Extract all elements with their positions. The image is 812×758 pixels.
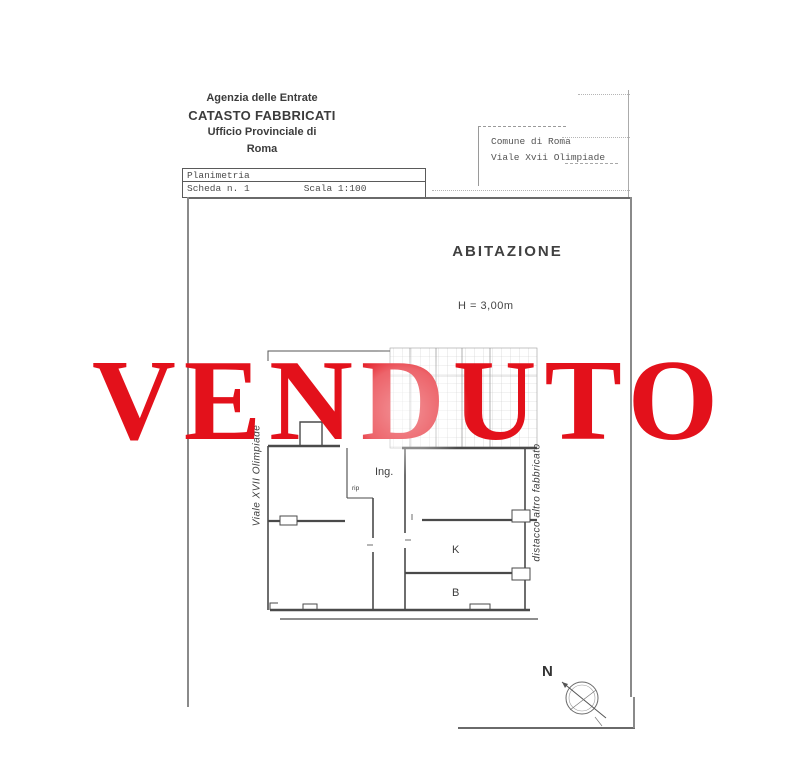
frame-top-border [187, 197, 632, 199]
agency-name: Agenzia delle Entrate [186, 90, 338, 107]
scan-artifact-vline [628, 90, 629, 197]
room-label-kitchen: K [452, 544, 460, 556]
planimetria-title: Planimetria [183, 169, 425, 182]
cadastre-title: CATASTO FABBRICATI [186, 107, 338, 124]
ceiling-height-label: H = 3,00m [458, 300, 514, 312]
sheet-number: Scheda n. 1 [187, 183, 250, 194]
province-name: Roma [186, 141, 338, 158]
window-symbol [512, 510, 530, 522]
planimetria-table: Planimetria Scheda n. 1 Scala 1:100 [182, 168, 426, 198]
window-symbol [280, 516, 297, 525]
window-symbol [512, 568, 530, 580]
scan-artifact-line [432, 190, 630, 191]
room-label-bathroom: B [452, 587, 459, 599]
scale-label: Scala 1:100 [304, 183, 367, 194]
location-box: Comune di Roma Viale Xvii Olimpiade [478, 126, 632, 186]
scan-artifact-line [565, 163, 618, 164]
agency-header: Agenzia delle Entrate CATASTO FABBRICATI… [186, 90, 338, 158]
room-label-closet: rip [352, 485, 360, 492]
gloss-highlight [338, 344, 470, 476]
provincial-office-label: Ufficio Provinciale di [186, 124, 338, 141]
frame-bottom-step [633, 697, 635, 728]
dwelling-type-label: ABITAZIONE [425, 243, 590, 260]
scan-artifact-line [562, 137, 630, 138]
scan-artifact-line [578, 94, 630, 95]
compass-rose: N [532, 648, 632, 733]
compass-north-label: N [542, 663, 553, 680]
